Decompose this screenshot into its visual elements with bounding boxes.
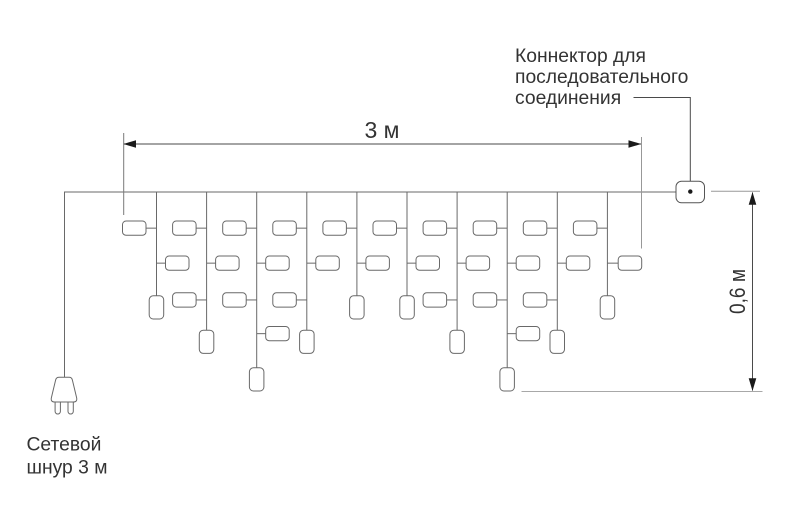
svg-text:0,6 м: 0,6 м bbox=[725, 269, 750, 314]
svg-text:шнур 3 м: шнур 3 м bbox=[27, 458, 108, 479]
svg-text:Сетевой: Сетевой bbox=[27, 435, 102, 456]
svg-text:Коннектор для: Коннектор для bbox=[515, 46, 646, 67]
svg-text:последовательного: последовательного bbox=[515, 67, 688, 88]
svg-text:3 м: 3 м bbox=[365, 117, 400, 143]
svg-text:соединения: соединения bbox=[515, 88, 621, 109]
